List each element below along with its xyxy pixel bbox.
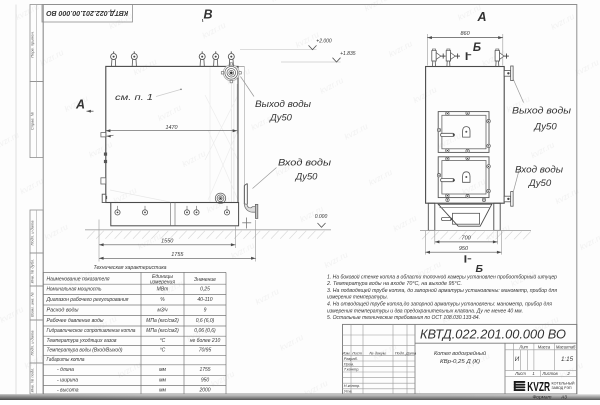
svg-text:Пров.: Пров. [344, 361, 354, 366]
svg-text:700: 700 [462, 236, 472, 242]
svg-text:А: А [75, 98, 85, 112]
svg-text:МПа (кгс/см2): МПа (кгс/см2) [146, 318, 179, 324]
svg-text:измерения: измерения [150, 279, 175, 285]
svg-text:МПа (кгс/см2): МПа (кгс/см2) [146, 328, 179, 334]
svg-text:0.000: 0.000 [315, 214, 328, 220]
svg-text:- высота: - высота [57, 387, 79, 393]
svg-text:МВт: МВт [157, 286, 169, 292]
svg-text:Подп.: Подп. [395, 350, 405, 355]
svg-text:2000: 2000 [198, 387, 210, 393]
svg-text:Вход воды: Вход воды [515, 165, 563, 176]
svg-text:9: 9 [204, 307, 207, 313]
svg-text:Справ. №: Справ. № [30, 111, 35, 130]
svg-text:Лит: Лит [518, 344, 528, 349]
svg-text:КВТД.022.201.00.000 ВО: КВТД.022.201.00.000 ВО [420, 326, 566, 341]
svg-text:1755: 1755 [199, 367, 210, 373]
svg-text:Формат: Формат [532, 395, 551, 400]
svg-text:Утв.: Утв. [344, 388, 353, 393]
svg-text:Значение: Значение [194, 277, 216, 283]
svg-text:Вход воды: Вход воды [278, 157, 331, 168]
svg-text:- длина: - длина [57, 367, 74, 373]
svg-text:Котел водогрейный: Котел водогрейный [434, 350, 487, 357]
svg-text:м3/ч: м3/ч [157, 307, 168, 313]
svg-text:950: 950 [201, 377, 210, 383]
svg-text:+2.000: +2.000 [316, 39, 332, 45]
svg-text:см. п. 1: см. п. 1 [115, 92, 153, 102]
svg-text:Ду50: Ду50 [533, 121, 557, 132]
svg-text:Н.контр.: Н.контр. [344, 383, 360, 388]
svg-text:Рабочее давление воды: Рабочее давление воды [47, 318, 104, 324]
svg-text:+1.835: +1.835 [340, 51, 356, 57]
svg-text:№ докум.: № докум. [369, 350, 386, 355]
svg-text:Б: Б [473, 42, 481, 54]
svg-text:Взам. инв. №: Взам. инв. № [30, 291, 35, 316]
svg-text:Т.контр.: Т.контр. [344, 367, 360, 372]
svg-text:ЗАВОД РЭП: ЗАВОД РЭП [552, 386, 572, 390]
svg-text:Выход воды: Выход воды [512, 105, 571, 116]
svg-text:И: И [515, 356, 520, 363]
svg-text:Масштаб: Масштаб [556, 344, 576, 349]
svg-text:1755: 1755 [171, 252, 184, 258]
svg-text:Разраб.: Разраб. [344, 356, 358, 361]
svg-text:4. На отводящей трубе котла,д: 4. На отводящей трубе котла,до запорной … [327, 301, 552, 308]
svg-text:КВр-0,25 Д (К): КВр-0,25 Д (К) [440, 359, 480, 365]
svg-text:1. На боковой стенке котла в: 1. На боковой стенке котла в области топ… [327, 273, 557, 280]
svg-text:- ширина: - ширина [57, 377, 78, 383]
svg-text:Инв. № подл.: Инв. № подл. [30, 368, 35, 393]
svg-text:Ду50: Ду50 [295, 170, 319, 181]
svg-text:40-110: 40-110 [197, 297, 212, 303]
svg-text:мм: мм [159, 387, 166, 393]
svg-text:2. Температура воды на входе: 2. Температура воды на входе 70°С, на вы… [326, 281, 462, 287]
svg-text:Дата: Дата [405, 350, 417, 355]
svg-text:измерения температуры и два пр: измерения температуры и два предохраните… [327, 308, 523, 314]
svg-text:Расход воды: Расход воды [47, 307, 79, 313]
svg-text:мм: мм [159, 377, 166, 383]
svg-text:Подп. и дата: Подп. и дата [30, 220, 35, 246]
svg-text:0,06 (0,6): 0,06 (0,6) [194, 328, 216, 334]
svg-text:1:15: 1:15 [561, 356, 574, 363]
svg-text:Наименование показателя: Наименование показателя [47, 276, 110, 282]
svg-text:Техническая характеристика: Техническая характеристика [94, 265, 167, 271]
svg-text:0,25: 0,25 [200, 286, 210, 292]
svg-text:КВТД.022.201.00.000 ВО: КВТД.022.201.00.000 ВО [46, 9, 128, 18]
svg-text:Ду50: Ду50 [528, 178, 552, 189]
svg-text:не более 210: не более 210 [190, 338, 221, 344]
svg-text:А: А [476, 10, 486, 24]
svg-text:Температура воды (Вход/Выход): Температура воды (Вход/Выход) [47, 347, 123, 353]
svg-text:мм: мм [159, 367, 166, 373]
svg-text:Лист: Лист [514, 371, 526, 376]
svg-text:860: 860 [460, 31, 470, 37]
svg-text:1: 1 [532, 371, 534, 376]
svg-text:%: % [160, 297, 165, 303]
svg-text:Перв. примен.: Перв. примен. [30, 31, 35, 58]
svg-text:Изм.: Изм. [342, 350, 350, 355]
svg-text:1550: 1550 [161, 239, 174, 245]
svg-text:70/95: 70/95 [199, 347, 212, 353]
svg-text:Подп. и дата: Подп. и дата [30, 330, 35, 356]
svg-text:1470: 1470 [166, 125, 178, 131]
svg-text:0,6 (6,0): 0,6 (6,0) [196, 318, 215, 324]
svg-text:Номинальная мощность: Номинальная мощность [47, 286, 102, 292]
svg-text:3. На подводящей трубе котла,: 3. На подводящей трубе котла, до запорно… [327, 287, 557, 294]
svg-text:Инв. № дубл.: Инв. № дубл. [30, 259, 35, 284]
svg-text:Выход воды: Выход воды [255, 98, 311, 109]
svg-text:Листов: Листов [541, 371, 558, 376]
svg-text:А3: А3 [560, 395, 567, 400]
svg-text:Температура уходящих газов: Температура уходящих газов [47, 338, 117, 344]
svg-text:°С: °С [160, 338, 166, 344]
svg-text:В: В [203, 8, 212, 22]
svg-text:Диапазон рабочего регулировани: Диапазон рабочего регулирования [45, 297, 128, 303]
svg-text:Габариты котла: Габариты котла [47, 357, 85, 363]
svg-text:Б: Б [475, 263, 483, 275]
svg-text:Масса: Масса [538, 344, 551, 349]
svg-text:5. Остальные технические треб: 5. Остальные технические требования по О… [327, 315, 480, 321]
svg-text:°С: °С [160, 347, 166, 353]
svg-text:950: 950 [459, 246, 469, 252]
svg-text:KVZR: KVZR [527, 379, 550, 394]
svg-text:измерения температуры.: измерения температуры. [327, 295, 388, 301]
svg-text:Ду50: Ду50 [269, 112, 293, 123]
svg-text:Гидравлическое сопротивление к: Гидравлическое сопротивление котла [47, 328, 136, 334]
svg-text:Лист: Лист [351, 350, 363, 355]
